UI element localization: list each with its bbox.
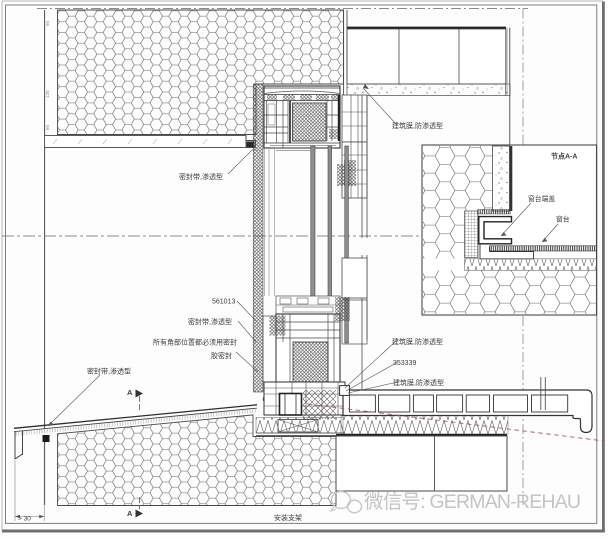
svg-text:353339: 353339 (393, 360, 416, 367)
svg-text:窗台端盖: 窗台端盖 (528, 194, 555, 203)
svg-text:微信号: GERMAN-REHAU: 微信号: GERMAN-REHAU (364, 491, 581, 513)
svg-text:50: 50 (45, 20, 50, 26)
svg-text:建筑膜,防渗透型: 建筑膜,防渗透型 (393, 378, 444, 387)
svg-text:窗台: 窗台 (556, 215, 570, 224)
svg-text:A: A (127, 388, 133, 397)
svg-text:节点A-A: 节点A-A (551, 152, 577, 161)
svg-text:60: 60 (45, 124, 50, 130)
svg-text:建筑膜,防渗透型: 建筑膜,防渗透型 (392, 121, 443, 130)
svg-text:密封带,渗透型: 密封带,渗透型 (87, 367, 131, 376)
svg-text:密封带,渗透型: 密封带,渗透型 (188, 317, 232, 326)
svg-text:建筑膜,防渗透型: 建筑膜,防渗透型 (392, 337, 443, 346)
svg-text:120: 120 (45, 90, 50, 98)
svg-text:胶密封: 胶密封 (211, 351, 232, 360)
svg-text:所有角部位置都必须用密封: 所有角部位置都必须用密封 (153, 338, 237, 347)
svg-text:安装支架: 安装支架 (274, 513, 302, 522)
svg-text:561013: 561013 (212, 299, 235, 306)
svg-text:A: A (127, 509, 133, 518)
svg-text:> 30: > 30 (18, 516, 31, 523)
svg-text:密封带,渗透型: 密封带,渗透型 (179, 172, 223, 181)
